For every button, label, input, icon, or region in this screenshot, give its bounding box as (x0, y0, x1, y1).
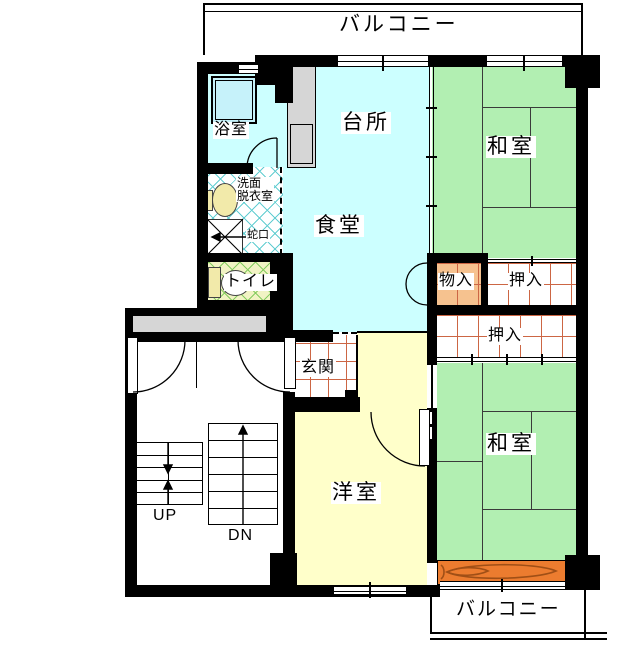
wall-segment (427, 305, 588, 315)
fusuma-tick (426, 156, 437, 158)
room-hallway (357, 332, 427, 412)
toilet-label: トイレ (224, 274, 277, 291)
dining-label: 食堂 (314, 215, 364, 237)
fusuma-tick (426, 205, 437, 207)
fusuma-line (429, 67, 430, 253)
toilet-tank (208, 267, 221, 298)
floor-plan: バルコニー 浴室 台所 和室 洗面 脱衣室 蛇口 食堂 トイレ 物入 押入 押入… (0, 0, 635, 645)
tatami-line (482, 207, 576, 208)
balcony-top-outline (203, 3, 583, 5)
washitsu-top-label: 和室 (486, 136, 536, 158)
fusuma-line (433, 67, 434, 253)
tatami-line (437, 461, 482, 462)
storage-label: 物入 (438, 273, 474, 290)
stairs-up-label: UP (152, 508, 178, 525)
washitsu-bottom-label: 和室 (486, 433, 536, 455)
stair-tread (208, 474, 278, 475)
closet-lower-label: 押入 (487, 328, 523, 345)
bathroom-label: 浴室 (213, 122, 249, 139)
washer-pan (207, 219, 243, 255)
window-mullion (501, 578, 503, 592)
balcony-bottom-label: バルコニー (455, 600, 562, 620)
fusuma-tick (506, 354, 508, 365)
stair-center-line (168, 442, 169, 505)
western-room-label: 洋室 (331, 482, 381, 504)
door-leaf-stairwell-left (127, 337, 138, 394)
room-boundary-line (357, 331, 427, 333)
wall-segment (576, 67, 588, 560)
wall-segment (283, 397, 360, 412)
faucet-label: 蛇口 (246, 230, 270, 242)
washbasin (212, 183, 238, 217)
bathtub (211, 76, 257, 124)
balcony-bottom-outline (430, 632, 607, 634)
wall-segment (481, 253, 488, 307)
balcony-bottom-outline (430, 638, 607, 640)
fusuma-tick (471, 354, 473, 365)
washroom-label-line2: 脱衣室 (237, 189, 273, 203)
stair-tread (208, 508, 278, 509)
window (487, 55, 562, 67)
tatami-line (531, 411, 532, 509)
stair-tread (208, 440, 278, 441)
balcony-top-outline (581, 3, 583, 55)
stair-tread (208, 491, 278, 492)
entrance-label: 玄関 (300, 360, 336, 377)
tatami-line (482, 509, 576, 510)
window-mullion (369, 582, 371, 598)
fusuma-tick (531, 256, 533, 266)
wall-segment (275, 85, 293, 103)
window-mullion (382, 55, 384, 71)
room-boundary-line (356, 335, 358, 397)
door-leaf-stairwell-right (284, 337, 296, 389)
wall-segment (197, 62, 208, 307)
fusuma-tick (426, 107, 437, 109)
dashed-opening (280, 167, 282, 255)
wall-line (431, 365, 433, 410)
washroom-label: 洗面 脱衣室 (236, 177, 274, 202)
window-mullion (523, 55, 525, 71)
kitchen-sink (290, 124, 313, 164)
wall-pillar (565, 555, 600, 590)
fusuma-tick (541, 354, 543, 365)
balcony-top-outline (204, 11, 582, 12)
wall-segment (255, 55, 293, 85)
stair-tread (208, 457, 278, 458)
tatami-line (482, 363, 483, 560)
door-leaf-western-room (419, 409, 430, 466)
wall-pillar (565, 55, 600, 88)
window (239, 64, 258, 74)
tatami-line (482, 411, 576, 412)
window (440, 581, 565, 590)
kitchen-label: 台所 (341, 112, 391, 134)
tatami-line (482, 107, 576, 108)
dashed-opening (333, 332, 357, 334)
wall-segment (283, 392, 295, 597)
balcony-top-label: バルコニー (338, 14, 460, 36)
balcony-bottom-outline (430, 590, 432, 633)
balcony-top-outline (203, 3, 205, 55)
wall-segment (197, 163, 253, 174)
closet-upper-label: 押入 (508, 273, 544, 290)
stairs-down-label: DN (227, 528, 254, 545)
stair-landing-slab (132, 315, 267, 333)
door-meet-line (196, 340, 197, 388)
tatami-line (482, 58, 483, 258)
